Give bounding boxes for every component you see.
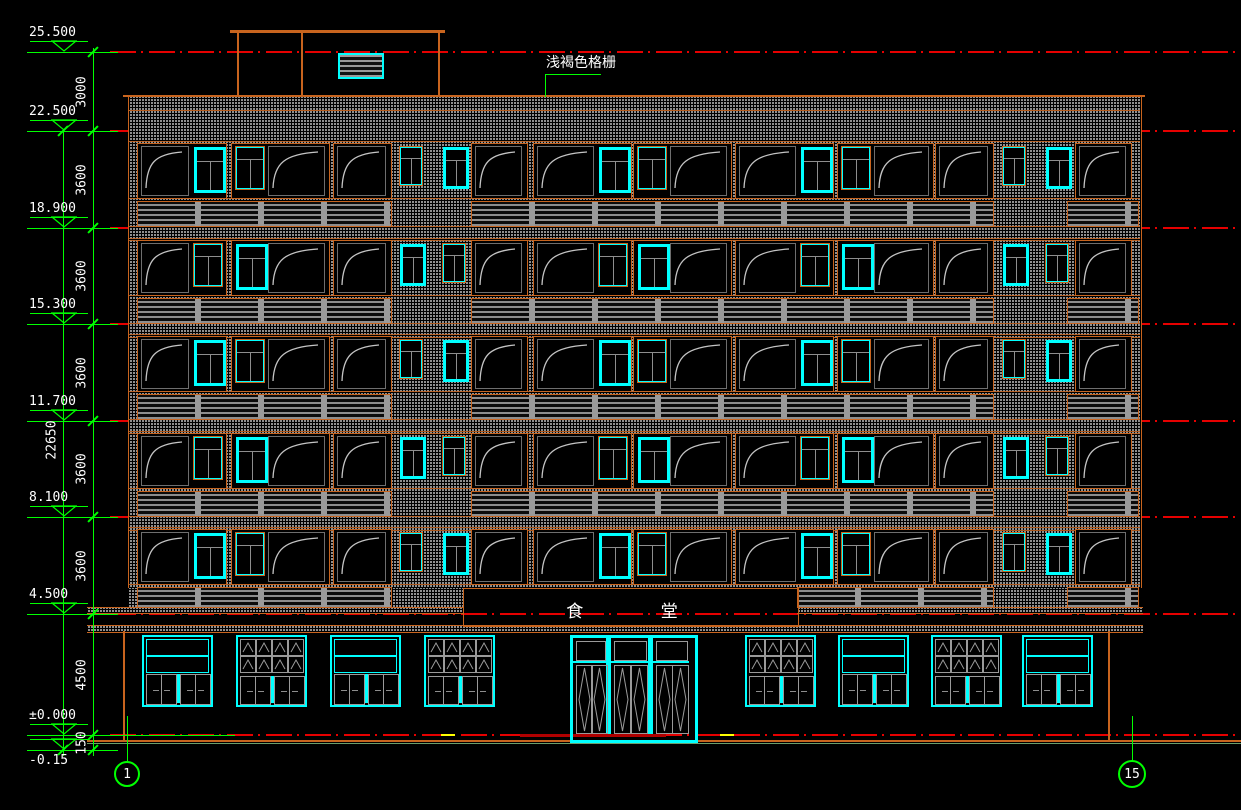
window-opening: [874, 436, 929, 486]
awning-open-mark: [984, 640, 998, 655]
shop-door-leaf: [289, 676, 305, 705]
transom-pane: [1026, 656, 1089, 673]
door-handle: [341, 690, 347, 691]
annotation-leader-h: [545, 74, 601, 75]
window-opening: [268, 146, 325, 196]
window-box-1-1: [231, 240, 330, 296]
window-opening: [670, 146, 727, 196]
small-window: [194, 533, 226, 579]
door-handle: [987, 691, 993, 692]
elevation-label-5: 8.100: [29, 490, 68, 505]
small-window: [1003, 533, 1025, 571]
small-window: [236, 437, 268, 483]
transom-pane: [1026, 639, 1089, 656]
awning-open-mark: [984, 657, 998, 672]
small-window: [638, 147, 666, 189]
ground-pale-green-line: [87, 743, 1241, 744]
door-handle: [756, 691, 762, 692]
awning-window-cell: [967, 639, 983, 656]
shop-door-leaf: [368, 674, 384, 705]
window-mullion: [858, 452, 859, 480]
window-swing-line: [875, 437, 926, 483]
awning-window-cell: [967, 656, 983, 673]
elevation-marker-triangle: [51, 723, 77, 735]
entrance-door-leaf: [656, 665, 673, 734]
triangle-glyph: [51, 738, 77, 750]
window-box-4-4: [533, 529, 632, 585]
awning-open-mark: [750, 657, 764, 672]
window-mullion: [1057, 449, 1058, 474]
window-mullion: [411, 545, 412, 570]
window-opening: [1079, 532, 1126, 582]
awning-open-mark: [257, 657, 271, 672]
window-box-1-2: [333, 240, 392, 296]
window-opening: [141, 146, 189, 196]
storefront-6: [931, 635, 1002, 707]
window-swing-line: [875, 244, 926, 290]
shop-door-leaf: [161, 674, 177, 705]
door-handle: [883, 690, 889, 691]
window-opening: [874, 339, 929, 389]
window-opening: [939, 532, 988, 582]
window-opening: [268, 436, 325, 486]
window-mullion: [1014, 352, 1015, 377]
window-swing-line: [269, 437, 322, 483]
elevation-marker-triangle: [51, 119, 77, 131]
window-mullion: [615, 548, 616, 576]
awning-open-mark: [241, 640, 255, 655]
small-window: [236, 244, 268, 290]
small-window: [194, 437, 222, 479]
window-box-4-5: [633, 529, 732, 585]
shop-door-leaf: [1041, 674, 1057, 705]
window-swing-line: [142, 244, 186, 290]
awning-window-cell: [240, 656, 256, 673]
shop-door-leaf: [857, 674, 873, 705]
canopy-fascia-left: [87, 607, 463, 614]
window-opening: [670, 532, 727, 582]
window-mullion: [411, 159, 412, 184]
axis-line-15: [1132, 716, 1133, 761]
awning-open-mark: [936, 657, 950, 672]
door-mullion: [780, 676, 783, 703]
window-swing-line: [1080, 340, 1123, 386]
level-tick-0: [27, 52, 118, 53]
awning-open-mark: [477, 640, 491, 655]
small-window: [443, 147, 469, 189]
door-mullion: [873, 674, 876, 703]
window-box-3-4: [533, 433, 632, 489]
dim-text-chain-4: 3600: [75, 453, 90, 484]
small-window: [842, 437, 874, 483]
storefront-4: [745, 635, 816, 707]
awning-window-cell: [749, 656, 765, 673]
small-window: [443, 244, 465, 282]
awning-open-mark: [952, 657, 966, 672]
window-box-0-9: [1075, 143, 1132, 199]
door-handle: [258, 691, 264, 692]
window-mullion: [454, 449, 455, 474]
window-mullion: [654, 259, 655, 287]
elevation-label-8: -0.15: [29, 753, 68, 768]
door-mullion: [966, 676, 969, 703]
window-box-2-1: [231, 336, 330, 392]
small-window: [638, 340, 666, 382]
awning-window-cell: [476, 639, 492, 656]
awning-window-cell: [781, 656, 797, 673]
storefront-7: [1022, 635, 1093, 707]
shop-door-leaf: [334, 674, 350, 705]
awning-window-cell: [797, 639, 813, 656]
door-diamond-mark: [632, 666, 647, 733]
window-opening: [141, 436, 189, 486]
window-mullion: [1014, 159, 1015, 184]
awning-window-cell: [460, 656, 476, 673]
window-opening: [874, 532, 929, 582]
awning-open-mark: [273, 640, 287, 655]
small-window: [842, 340, 870, 382]
small-window: [400, 244, 426, 286]
awning-window-cell: [476, 656, 492, 673]
window-opening: [670, 243, 727, 293]
small-window: [842, 533, 870, 575]
door-diamond-mark: [577, 666, 592, 733]
door-handle: [849, 690, 855, 691]
window-mullion: [817, 548, 818, 576]
window-box-2-4: [533, 336, 632, 392]
small-window: [1046, 244, 1068, 282]
annotation-leader-v: [545, 74, 546, 97]
floor-head-line-1: [128, 238, 1140, 239]
dim-text-chain-1: 3600: [75, 164, 90, 195]
entrance-door-leaf: [672, 665, 689, 734]
window-mullion: [454, 256, 455, 281]
canopy-fascia-right: [797, 607, 1143, 614]
elevation-marker-triangle: [51, 312, 77, 324]
door-handle: [446, 691, 452, 692]
door-mullion: [1057, 674, 1060, 703]
level-tick-3: [27, 324, 118, 325]
door-handle: [281, 691, 287, 692]
window-opening: [337, 339, 386, 389]
window-opening: [475, 532, 522, 582]
cad-elevation-drawing: 食 堂浅褐色格栅25.50022.50018.90015.30011.7008.…: [0, 0, 1241, 810]
window-box-3-5: [633, 433, 732, 489]
awning-window-cell: [256, 656, 272, 673]
shop-door-leaf: [935, 676, 951, 705]
door-mullion: [459, 676, 462, 703]
window-box-1-5: [633, 240, 732, 296]
awning-open-mark: [461, 640, 475, 655]
window-mullion: [1014, 545, 1015, 570]
roof-structure-post-2: [438, 33, 440, 95]
axis-line-1: [127, 716, 128, 761]
window-box-0-8: [935, 143, 994, 199]
window-opening: [739, 146, 796, 196]
shop-door-leaf: [1060, 674, 1076, 705]
small-window: [801, 147, 833, 193]
shop-door-leaf: [798, 676, 814, 705]
window-mullion: [856, 353, 857, 381]
shop-door-leaf: [428, 676, 444, 705]
balcony-louver-band-1-2: [1067, 298, 1139, 324]
window-swing-line: [740, 340, 793, 386]
window-mullion: [208, 450, 209, 478]
triangle-glyph: [51, 40, 77, 52]
window-opening: [939, 339, 988, 389]
shop-door-leaf: [842, 674, 858, 705]
window-box-3-1: [231, 433, 330, 489]
roof-louver-vent: [338, 53, 384, 79]
door-handle: [198, 690, 204, 691]
window-mullion: [815, 450, 816, 478]
window-mullion: [210, 162, 211, 190]
awning-open-mark: [429, 657, 443, 672]
door-handle: [801, 691, 807, 692]
shop-door-leaf: [984, 676, 1000, 705]
small-window: [638, 533, 666, 575]
window-box-2-9: [1075, 336, 1132, 392]
level-tick-7: [27, 735, 235, 736]
awning-open-mark: [968, 640, 982, 655]
elevation-label-3: 15.300: [29, 297, 76, 312]
window-swing-line: [740, 147, 793, 193]
entrance-door-leaf: [631, 665, 648, 734]
window-opening: [537, 532, 594, 582]
awning-open-mark: [782, 657, 796, 672]
awning-open-mark: [968, 657, 982, 672]
window-mullion: [613, 257, 614, 285]
door-handle: [292, 691, 298, 692]
small-window: [599, 340, 631, 386]
window-box-2-7: [837, 336, 934, 392]
window-opening: [1079, 243, 1126, 293]
triangle-glyph: [51, 505, 77, 517]
window-swing-line: [671, 437, 724, 483]
dim-text-chain-2: 3600: [75, 260, 90, 291]
shop-door-leaf: [462, 676, 478, 705]
shop-door-leaf: [443, 676, 459, 705]
window-box-3-9: [1075, 433, 1132, 489]
shop-door-leaf: [783, 676, 799, 705]
small-window: [1003, 147, 1025, 185]
door-handle: [153, 690, 159, 691]
axis-bubble-1: 1: [114, 761, 140, 787]
axis-bubble-15: 15: [1118, 760, 1146, 788]
shop-door-leaf: [1026, 674, 1042, 705]
awning-window-cell: [428, 656, 444, 673]
balcony-louver-band-1-1: [471, 298, 994, 324]
awning-window-cell: [951, 656, 967, 673]
window-mullion: [413, 451, 414, 476]
shop-door-leaf: [180, 674, 196, 705]
awning-window-cell: [444, 639, 460, 656]
small-window: [599, 533, 631, 579]
window-opening: [475, 146, 522, 196]
window-box-4-2: [333, 529, 392, 585]
window-swing-line: [940, 147, 985, 193]
floor-head-line-3: [128, 431, 1140, 432]
shop-door-leaf: [764, 676, 780, 705]
door-handle: [469, 691, 475, 692]
awning-open-mark: [766, 657, 780, 672]
awning-window-cell: [935, 656, 951, 673]
dim-chain-line: [93, 48, 94, 756]
window-box-0-7: [837, 143, 934, 199]
window-opening: [1079, 339, 1126, 389]
window-box-0-6: [735, 143, 834, 199]
window-box-1-8: [935, 240, 994, 296]
awning-window-cell: [428, 639, 444, 656]
window-mullion: [250, 160, 251, 188]
small-window: [1046, 533, 1072, 575]
elevation-marker-triangle: [51, 216, 77, 228]
door-diamond-mark: [615, 666, 630, 733]
window-mullion: [817, 355, 818, 383]
window-swing-line: [538, 533, 591, 579]
awning-window-cell: [444, 656, 460, 673]
window-swing-line: [740, 533, 793, 579]
awning-open-mark: [798, 657, 812, 672]
window-opening: [475, 436, 522, 486]
window-opening: [475, 243, 522, 293]
shop-door-leaf: [950, 676, 966, 705]
storefront-0: [142, 635, 213, 707]
storefront-1: [236, 635, 307, 707]
window-mullion: [456, 161, 457, 186]
elevation-label-1: 22.500: [29, 104, 76, 119]
awning-open-mark: [766, 640, 780, 655]
window-box-4-6: [735, 529, 834, 585]
triangle-glyph: [51, 119, 77, 131]
door-diamond-mark: [657, 666, 672, 733]
window-box-4-9: [1075, 529, 1132, 585]
roof-structure-cap: [230, 30, 445, 33]
window-mullion: [250, 546, 251, 574]
window-swing-line: [671, 244, 724, 290]
window-swing-line: [269, 244, 322, 290]
window-mullion: [615, 162, 616, 190]
window-mullion: [208, 257, 209, 285]
small-window: [842, 244, 874, 290]
entrance-transom-bar: [573, 661, 689, 663]
awning-open-mark: [952, 640, 966, 655]
awning-open-mark: [289, 657, 303, 672]
ground-wall-right: [1108, 631, 1110, 741]
window-box-4-1: [231, 529, 330, 585]
dim-text-chain-6: 4500: [75, 659, 90, 690]
door-handle: [894, 690, 900, 691]
awning-window-cell: [781, 639, 797, 656]
window-box-0-4: [533, 143, 632, 199]
awning-open-mark: [750, 640, 764, 655]
small-window: [236, 533, 264, 575]
window-mullion: [250, 353, 251, 381]
awning-window-cell: [951, 639, 967, 656]
window-opening: [268, 243, 325, 293]
elevation-marker-triangle: [51, 40, 77, 52]
yellow-dash-0: [441, 734, 455, 736]
door-handle: [767, 691, 773, 692]
window-swing-line: [940, 340, 985, 386]
level-tick-4: [27, 421, 118, 422]
window-mullion: [856, 546, 857, 574]
window-box-3-2: [333, 433, 392, 489]
awning-window-cell: [765, 639, 781, 656]
window-opening: [141, 532, 189, 582]
small-window: [638, 244, 670, 290]
window-swing-line: [476, 533, 519, 579]
awning-window-cell: [983, 639, 999, 656]
transom-pane: [146, 656, 209, 673]
window-mullion: [252, 452, 253, 480]
small-window: [599, 437, 627, 479]
window-mullion: [411, 352, 412, 377]
level-tick-8: [27, 750, 118, 751]
small-window: [801, 340, 833, 386]
elevation-label-4: 11.700: [29, 394, 76, 409]
window-box-3-3: [471, 433, 528, 489]
window-swing-line: [538, 147, 591, 193]
window-swing-line: [142, 437, 186, 483]
window-mullion: [456, 354, 457, 379]
door-handle: [860, 690, 866, 691]
annotation-text: 浅褐色格栅: [546, 52, 616, 72]
window-opening: [939, 436, 988, 486]
window-swing-line: [1080, 147, 1123, 193]
dim-text-chain-5: 3600: [75, 550, 90, 581]
door-handle: [435, 691, 441, 692]
window-swing-line: [1080, 533, 1123, 579]
small-window: [801, 437, 829, 479]
window-box-0-0: [137, 143, 227, 199]
window-mullion: [858, 259, 859, 287]
small-window: [443, 340, 469, 382]
window-mullion: [654, 452, 655, 480]
shop-door-leaf: [749, 676, 765, 705]
shop-door-leaf: [969, 676, 985, 705]
window-box-3-8: [935, 433, 994, 489]
triangle-glyph: [51, 216, 77, 228]
window-swing-line: [476, 244, 519, 290]
elevation-marker-triangle: [51, 602, 77, 614]
entrance-mullion: [648, 638, 653, 734]
shop-door-leaf: [274, 676, 290, 705]
awning-window-cell: [288, 656, 304, 673]
door-handle: [1078, 690, 1084, 691]
door-handle: [953, 691, 959, 692]
shop-door-leaf: [146, 674, 162, 705]
triangle-glyph: [51, 602, 77, 614]
door-handle: [1067, 690, 1073, 691]
small-window: [1003, 244, 1029, 286]
door-handle: [164, 690, 170, 691]
small-window: [443, 533, 469, 575]
window-mullion: [1057, 256, 1058, 281]
window-swing-line: [269, 340, 322, 386]
window-opening: [670, 339, 727, 389]
window-box-1-7: [837, 240, 934, 296]
window-opening: [141, 243, 189, 293]
window-opening: [337, 146, 386, 196]
small-window: [599, 147, 631, 193]
window-opening: [268, 339, 325, 389]
balcony-louver-band-2-0: [137, 394, 392, 420]
window-box-2-8: [935, 336, 994, 392]
awning-open-mark: [782, 640, 796, 655]
window-box-4-3: [471, 529, 528, 585]
window-swing-line: [269, 533, 322, 579]
